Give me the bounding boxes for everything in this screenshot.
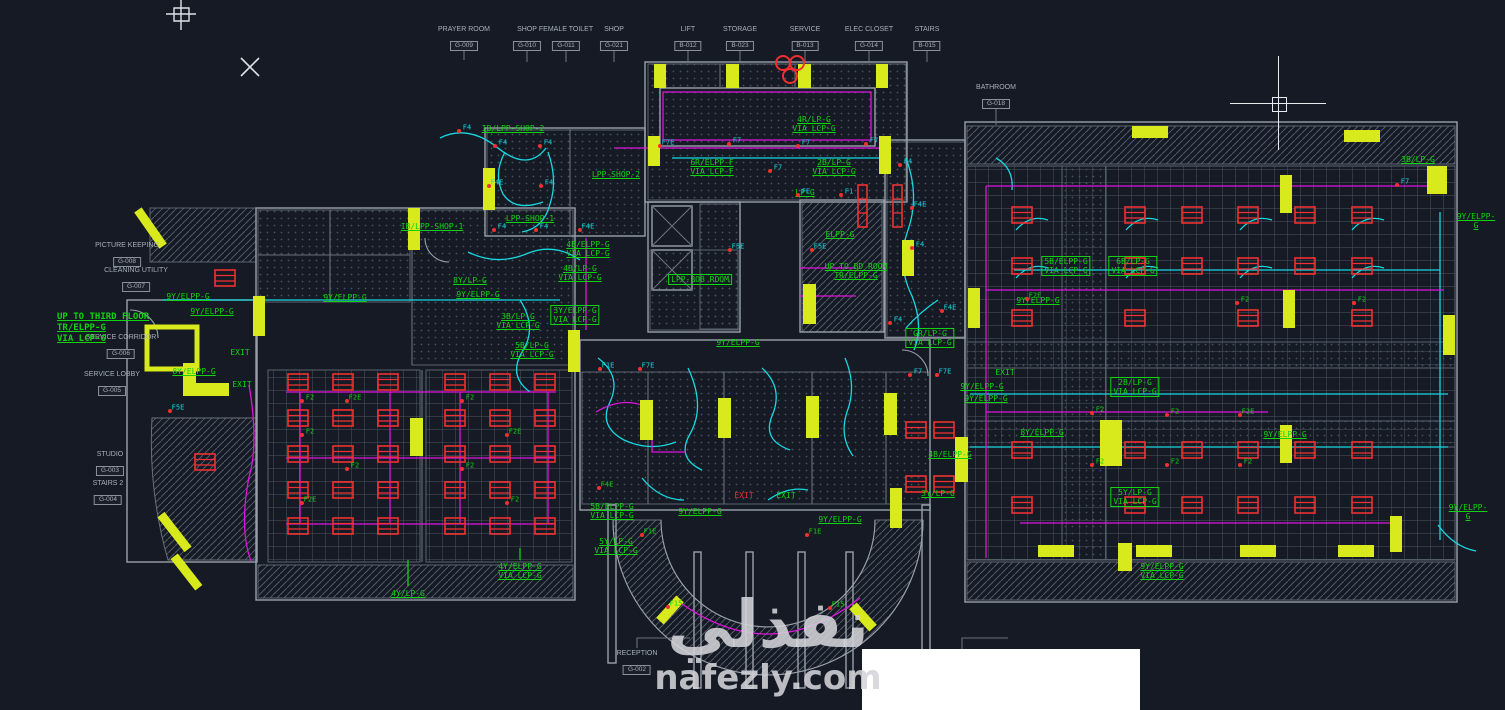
hatched-room [967, 126, 1455, 164]
door-highlight [803, 284, 816, 324]
hatched-room [967, 342, 1455, 368]
door-highlight [890, 488, 902, 528]
door-highlight [726, 64, 739, 88]
door-highlight [410, 418, 423, 456]
ucs-icon [150, 0, 240, 90]
x-marker [238, 55, 264, 81]
door-highlight [1344, 130, 1380, 142]
hatched-room [150, 208, 256, 262]
door-highlight [1132, 126, 1168, 138]
door-highlight [654, 64, 666, 88]
door-highlight [879, 136, 891, 174]
door-highlight [183, 383, 229, 396]
door-highlight [1118, 543, 1132, 571]
door-highlight [253, 296, 265, 336]
door-highlight [1390, 516, 1402, 552]
hatched-shape [151, 418, 256, 560]
hatched-room [967, 421, 1455, 447]
door-highlight [876, 64, 888, 88]
white-overlay-box [862, 649, 1140, 710]
door-highlight [483, 168, 495, 210]
door-highlight [1427, 166, 1447, 194]
door-highlight [568, 330, 580, 372]
hatched-room [487, 130, 645, 236]
door-highlight [1443, 315, 1455, 355]
door-highlight [718, 398, 731, 438]
door-highlight [902, 240, 914, 276]
door-highlight [1338, 545, 1374, 557]
door-highlight [798, 64, 811, 88]
door-highlight [1280, 425, 1292, 463]
door-highlight [955, 437, 968, 482]
door-highlight [640, 400, 653, 440]
emergency-light-fixture [934, 422, 954, 438]
door-highlight [1280, 175, 1292, 213]
door-highlight [1240, 545, 1276, 557]
door-highlight [1136, 545, 1172, 557]
cad-viewport[interactable]: PRAYER ROOMG-009SHOPG-010FEMALE TOILETG-… [0, 0, 1505, 710]
hatched-room [648, 64, 906, 200]
door-highlight [1100, 420, 1122, 466]
door-highlight [1283, 290, 1295, 328]
hatched-room [967, 562, 1455, 600]
hatched-room [582, 372, 930, 504]
door-highlight [147, 327, 197, 369]
door-highlight [884, 393, 897, 435]
emergency-light-fixture [215, 270, 235, 286]
door-highlight [1038, 545, 1074, 557]
hatched-room [887, 142, 965, 337]
hatched-room [258, 210, 410, 302]
door-highlight [968, 288, 980, 328]
door-highlight [408, 208, 420, 250]
emergency-light-fixture [934, 476, 954, 492]
door-highlight [806, 396, 819, 438]
door-highlight [648, 136, 660, 166]
hatched-room [258, 565, 573, 598]
